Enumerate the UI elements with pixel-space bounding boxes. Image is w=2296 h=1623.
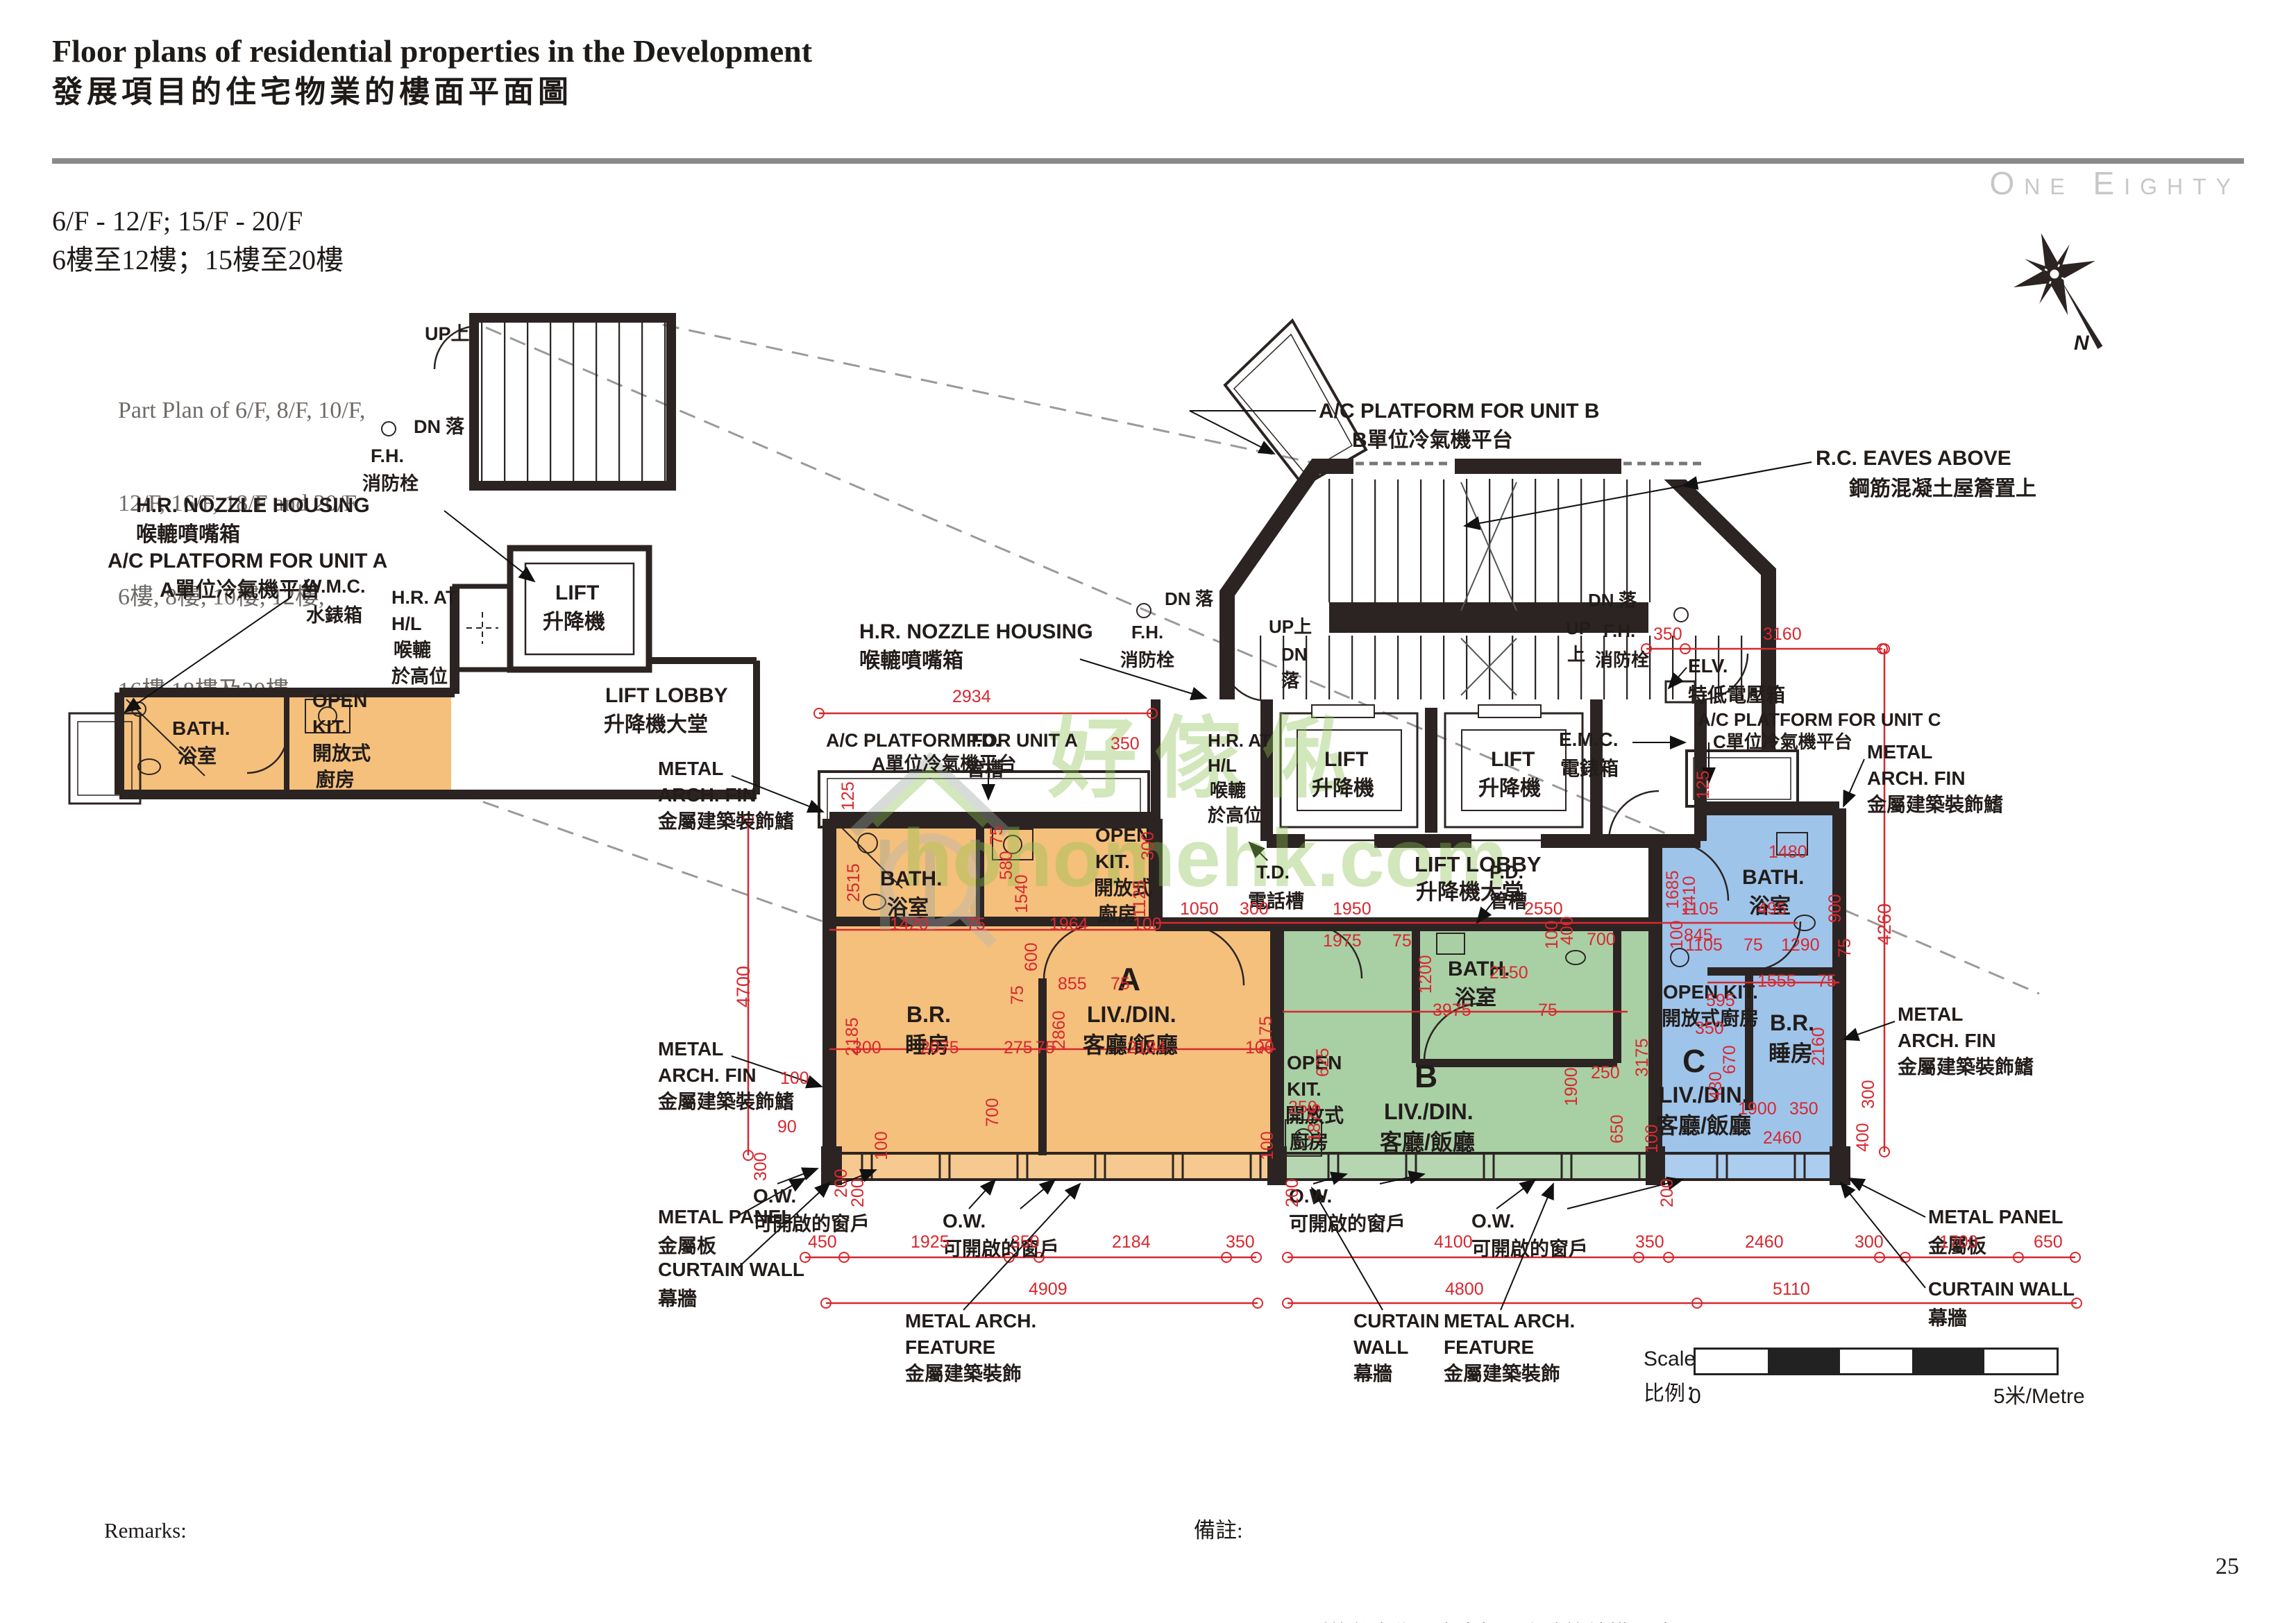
dimension-text: 1900 — [1738, 1101, 1777, 1118]
dimension-text: 400 — [1855, 1123, 1872, 1152]
plan-label: LIV./DIN. — [1384, 1101, 1474, 1123]
dimension-text: 1700 — [1939, 1234, 1978, 1251]
plan-label: ARCH. FIN — [1898, 1031, 1996, 1051]
dimension-text: 2185 — [844, 1017, 861, 1056]
plan-label: 喉轆噴嘴箱 — [859, 651, 963, 672]
plan-label: ELV. — [1688, 656, 1728, 676]
dimension-text: 845 — [1684, 927, 1713, 944]
plan-label: A單位冷氣機平台 — [160, 580, 321, 601]
dimension-text: 1975 — [1323, 933, 1362, 950]
plan-label: 客廳/飯廳 — [1656, 1114, 1751, 1137]
dimension-text: 450 — [808, 1234, 837, 1251]
dimension-text: 1950 — [1333, 901, 1371, 918]
dimension-text: 3175 — [1634, 1038, 1651, 1077]
dimension-text: 700 — [1587, 931, 1616, 949]
dimension-text: 670 — [1721, 1045, 1739, 1074]
plan-label: BATH. — [880, 869, 942, 890]
plan-label: 喉轆噴嘴箱 — [136, 525, 240, 545]
plan-label: B.R. — [1770, 1012, 1814, 1034]
dimension-text: 350 — [1226, 1234, 1255, 1251]
plan-label: LIFT — [1491, 749, 1535, 770]
dimension-text: 5110 — [1773, 1281, 1810, 1298]
plan-label: 管槽 — [1489, 892, 1527, 911]
plan-label: 落 — [446, 418, 464, 436]
scale-bar — [1694, 1348, 2059, 1375]
dimension-text: 2460 — [1763, 1130, 1802, 1147]
plan-label: FEATURE — [905, 1338, 995, 1357]
remarks-zh: 備註: 1. 平面圖所列的數字為以毫米標示之建築結構尺寸。 2. 請參閱本售樓說… — [1194, 1445, 2249, 1623]
dimension-text: 300 — [1860, 1080, 1877, 1109]
plan-label: LIFT LOBBY — [605, 686, 728, 706]
dimension-text: 1925 — [911, 1234, 949, 1251]
dimension-text: 300 — [1140, 831, 1157, 860]
plan-label: 幕牆 — [658, 1289, 697, 1309]
plan-label: C單位冷氣機平台 — [1713, 733, 1852, 751]
dimension-text: 75 — [1009, 985, 1027, 1005]
dimension-text: 125 — [1695, 770, 1712, 799]
dimension-text: 75 — [966, 916, 986, 933]
plan-label: 開放式 — [312, 744, 371, 763]
dimension-text: 1480 — [1769, 844, 1807, 861]
dimension-text: 3175 — [1258, 1016, 1275, 1055]
plan-label: H.R. AT — [1208, 731, 1271, 749]
plan-label: 喉轆 — [394, 641, 431, 660]
dimension-text: 75 — [1817, 973, 1837, 990]
plan-label: LIFT — [555, 583, 599, 604]
dimension-text: 400 — [1559, 916, 1576, 945]
plan-label: METAL — [1898, 1005, 1963, 1024]
dimension-text: 75 — [1744, 937, 1763, 954]
plan-label: BATH. — [172, 719, 230, 738]
dimension-text: 300 — [752, 1152, 770, 1181]
plan-label: CURTAIN WALL — [1928, 1280, 2075, 1299]
plan-label: CURTAIN WALL — [658, 1260, 804, 1280]
dimension-text: 1290 — [1781, 937, 1820, 954]
plan-label: H/L — [1208, 756, 1237, 774]
plan-label: 升降機 — [543, 612, 605, 633]
dimension-text: 75 — [1392, 933, 1412, 950]
plan-annotations: H.R. NOZZLE HOUSING喉轆噴嘴箱A/C PLATFORM FOR… — [0, 0, 2296, 1623]
plan-label: E.M.C. — [1559, 730, 1619, 749]
dimension-text: 430 — [1707, 1071, 1725, 1101]
plan-label: 落 — [1195, 590, 1213, 608]
dimension-text: 1420 — [890, 916, 929, 933]
plan-label: 浴室 — [178, 747, 217, 766]
plan-label: 水錶箱 — [306, 606, 362, 625]
dimension-text: 2150 — [1489, 965, 1528, 982]
dimension-text: 350 — [1111, 736, 1140, 753]
plan-label: 落 — [1281, 672, 1299, 690]
dimension-text: 300 — [1240, 901, 1269, 918]
dimension-text: 90 — [777, 1119, 797, 1136]
dimension-text: 4260 — [1875, 903, 1894, 945]
dimension-text: 2934 — [952, 688, 991, 706]
dimension-text: 100 — [780, 1070, 809, 1087]
plan-label: A/C PLATFORM FOR UNIT B — [1319, 401, 1599, 422]
plan-label: METAL — [658, 759, 723, 779]
dimension-text: 1555 — [1757, 973, 1796, 990]
plan-label: 金屬建築裝飾鰭 — [1898, 1057, 2034, 1077]
dimension-text: 700 — [984, 1098, 1002, 1127]
plan-label: KIT. — [1095, 852, 1130, 872]
plan-label: 於高位 — [391, 668, 448, 686]
plan-label: P.D. — [1489, 863, 1523, 882]
plan-label: KIT. — [312, 717, 347, 737]
plan-label: 金屬建築裝飾鰭 — [1867, 795, 2003, 815]
dimension-text: 100 — [1259, 1131, 1276, 1160]
dimension-text: 4100 — [1434, 1234, 1473, 1251]
plan-label: C — [1682, 1045, 1705, 1077]
plan-label: ARCH. FIN — [658, 785, 757, 805]
dimension-text: 1050 — [1180, 901, 1219, 918]
plan-label: LIFT — [1324, 749, 1368, 770]
dimension-text: 1964 — [1049, 916, 1088, 933]
dimension-text: 4800 — [1445, 1281, 1484, 1298]
dimension-text: 600 — [1023, 942, 1040, 971]
dimension-text: 275 — [1004, 1039, 1033, 1057]
dimension-text: 200 — [850, 1178, 867, 1207]
plan-label: DN — [1588, 591, 1614, 609]
dimension-text: 3160 — [1763, 626, 1802, 643]
dimension-text: 100 — [1669, 920, 1686, 949]
plan-label: LIV./DIN. — [1659, 1084, 1748, 1106]
plan-label: F.H. — [371, 447, 404, 466]
dimension-text: 75 — [1837, 938, 1854, 958]
dimension-text: 625 — [1315, 1048, 1332, 1077]
plan-label: 升降機 — [1312, 779, 1374, 799]
plan-label: 可開啟的窗戶 — [753, 1214, 870, 1234]
plan-label: LIV./DIN. — [1087, 1003, 1176, 1026]
plan-label: 客廳/飯廳 — [1380, 1131, 1475, 1153]
remarks-en-item: 1. The dimensions in floor plans are all… — [104, 1617, 1187, 1623]
plan-label: METAL — [658, 1039, 723, 1059]
plan-label: OPEN — [312, 691, 367, 711]
plan-label: 幕牆 — [1353, 1364, 1392, 1384]
dimension-text: 75 — [1538, 1002, 1558, 1019]
plan-label: T.D. — [1256, 863, 1290, 882]
plan-label: 升降機大堂 — [604, 715, 708, 736]
plan-label: A/C PLATFORM FOR UNIT A — [108, 551, 387, 572]
plan-label: 金屬建築裝飾鰭 — [658, 812, 794, 831]
plan-label: A/C PLATFORM FOR UNIT A — [826, 731, 1078, 750]
plan-label: 幕牆 — [1928, 1309, 1967, 1328]
dimension-text: 2075 — [920, 1039, 959, 1057]
dimension-text: 2550 — [1524, 901, 1563, 918]
scale-start: 0 — [1689, 1385, 1701, 1409]
plan-label: UP上 — [1269, 618, 1312, 636]
plan-label: 消防栓 — [1120, 651, 1174, 669]
dimension-text: 1900 — [1563, 1067, 1580, 1106]
plan-label: UP上 — [425, 325, 470, 343]
plan-label: B單位冷氣機平台 — [1352, 430, 1513, 451]
plan-label: H.R. NOZZLE HOUSING — [136, 495, 370, 516]
plan-label: BATH. — [1742, 867, 1804, 888]
dimension-text: 200 — [1284, 1178, 1301, 1207]
plan-label: 喉轆 — [1210, 781, 1246, 799]
scale-label-en: Scale: — [1644, 1348, 1701, 1372]
scale-end: 5米/Metre — [1993, 1385, 2085, 1409]
plan-label: B — [1415, 1060, 1437, 1092]
plan-label: W.M.C. — [304, 577, 366, 596]
remarks-zh-item: 1. 平面圖所列的數字為以毫米標示之建築結構尺寸。 — [1194, 1617, 2249, 1623]
dimension-text: 100 — [1133, 916, 1162, 933]
dimension-text: 75 — [1111, 976, 1130, 993]
plan-label: 金屬建築裝飾鰭 — [658, 1092, 794, 1112]
plan-label: F.H. — [1603, 622, 1635, 640]
brochure-page: Floor plans of residential properties in… — [0, 0, 2296, 1623]
dimension-text: 100 — [873, 1131, 890, 1160]
plan-label: ARCH. FIN — [1867, 769, 1966, 788]
plan-label: 金屬建築裝飾 — [1444, 1364, 1560, 1384]
dimension-text: 595 — [1706, 992, 1735, 1010]
plan-label: FEATURE — [1444, 1338, 1534, 1357]
remarks-en: Remarks: 1. The dimensions in floor plan… — [104, 1445, 1187, 1623]
dimension-text: 650 — [2034, 1234, 2063, 1251]
dimension-text: 350 — [1695, 1020, 1724, 1037]
dimension-text: 350 — [1653, 626, 1682, 643]
dimension-text: 350 — [1789, 1101, 1818, 1118]
plan-label: 金屬建築裝飾 — [905, 1364, 1022, 1384]
dimension-text: 75 — [988, 826, 1006, 845]
dimension-text: 4700 — [734, 966, 753, 1008]
dimension-text: 4909 — [1029, 1281, 1067, 1298]
plan-label: F.H. — [1131, 623, 1163, 641]
dimension-text: 2515 — [845, 863, 863, 902]
dimension-text: 1200 — [1417, 955, 1435, 994]
dimension-text: 75 — [1036, 1039, 1055, 1057]
plan-label: CURTAIN — [1353, 1311, 1440, 1331]
plan-label: 管槽 — [966, 760, 1004, 779]
plan-label: 上 — [1567, 645, 1585, 663]
plan-label: 可開啟的窗戶 — [943, 1239, 1059, 1259]
plan-label: DN — [1281, 645, 1308, 663]
dimension-text: 250 — [1591, 1064, 1620, 1082]
plan-label: 金屬板 — [658, 1237, 716, 1256]
plan-label: O.W. — [753, 1187, 796, 1206]
dimension-text: 200 — [1659, 1178, 1676, 1207]
plan-label: O.W. — [943, 1212, 986, 1231]
plan-label: 鋼筋混凝土屋簷置上 — [1849, 479, 2036, 500]
dimension-text: 2184 — [1127, 1039, 1166, 1057]
plan-label: UP — [1566, 619, 1591, 637]
remarks-en-heading: Remarks: — [104, 1513, 1187, 1548]
plan-label: METAL — [1867, 742, 1932, 762]
remarks-zh-heading: 備註: — [1194, 1513, 2249, 1548]
dimension-text: 1410 — [1681, 876, 1698, 915]
dimension-text: 900 — [1827, 894, 1844, 923]
plan-label: 升降機 — [1478, 779, 1541, 799]
dimension-text: 250 — [1288, 1099, 1317, 1116]
plan-label: P.D. — [966, 731, 1000, 750]
page-number: 25 — [2215, 1553, 2239, 1580]
plan-label: DN — [1165, 590, 1191, 608]
plan-label: 消防栓 — [1595, 651, 1649, 669]
plan-label: DN — [414, 418, 441, 436]
plan-label: KIT. — [1287, 1080, 1322, 1099]
dimension-text: 495 — [1757, 901, 1787, 918]
plan-label: METAL ARCH. — [905, 1311, 1036, 1331]
plan-label: R.C. EAVES ABOVE — [1816, 448, 2011, 469]
plan-label: A/C PLATFORM FOR UNIT C — [1698, 711, 1941, 729]
plan-label: O.W. — [1471, 1212, 1514, 1231]
dimension-text: 100 — [1644, 1124, 1661, 1153]
plan-label: 電錶箱 — [1560, 759, 1619, 779]
plan-label: H.R. NOZZLE HOUSING — [859, 622, 1093, 643]
plan-label: 可開啟的窗戶 — [1289, 1214, 1406, 1234]
plan-label: 特低電壓箱 — [1688, 686, 1785, 705]
plan-label: 落 — [1619, 591, 1637, 609]
plan-label: METAL PANEL — [1928, 1207, 2063, 1227]
plan-label: 廚房 — [316, 770, 355, 790]
dimension-text: 2184 — [1112, 1234, 1151, 1251]
plan-label: WALL — [1353, 1338, 1408, 1357]
plan-label: H.R. AT — [391, 588, 457, 607]
dimension-text: 650 — [1609, 1114, 1626, 1144]
plan-label: 消防栓 — [362, 475, 419, 493]
plan-label: H/L — [391, 615, 422, 634]
plan-label: METAL ARCH. — [1444, 1311, 1575, 1331]
dimension-text: 350 — [1635, 1234, 1664, 1251]
dimension-text: 855 — [1058, 976, 1087, 993]
plan-label: 於高位 — [1208, 806, 1262, 824]
dimension-text: 2160 — [1810, 1027, 1827, 1066]
dimension-text: 300 — [1855, 1234, 1884, 1251]
plan-label: 睡房 — [1769, 1042, 1813, 1064]
plan-label: ARCH. FIN — [658, 1066, 757, 1085]
dimension-text: 1540 — [1013, 874, 1031, 913]
dimension-text: 350 — [1011, 1234, 1040, 1251]
dimension-text: 3975 — [1433, 1002, 1471, 1019]
dimension-text: 1125 — [1131, 880, 1149, 917]
dimension-text: 2460 — [1745, 1234, 1784, 1251]
plan-label: 可開啟的窗戶 — [1471, 1239, 1588, 1259]
dimension-text: 125 — [840, 781, 857, 810]
plan-label: B.R. — [906, 1003, 951, 1026]
